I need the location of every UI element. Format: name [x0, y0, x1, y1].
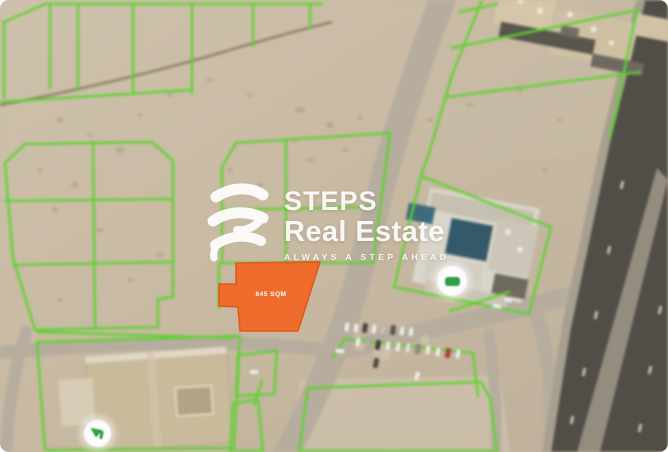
marker-tree-glyph: [90, 427, 105, 440]
satellite-map: [0, 0, 668, 452]
location-marker-icon: [437, 266, 467, 296]
tree-marker-icon: [84, 420, 111, 447]
map-canvas: 645 SQM STEPS Real Estate ALWAYS A STEP …: [0, 0, 668, 452]
marker-green-glyph: [445, 277, 460, 286]
